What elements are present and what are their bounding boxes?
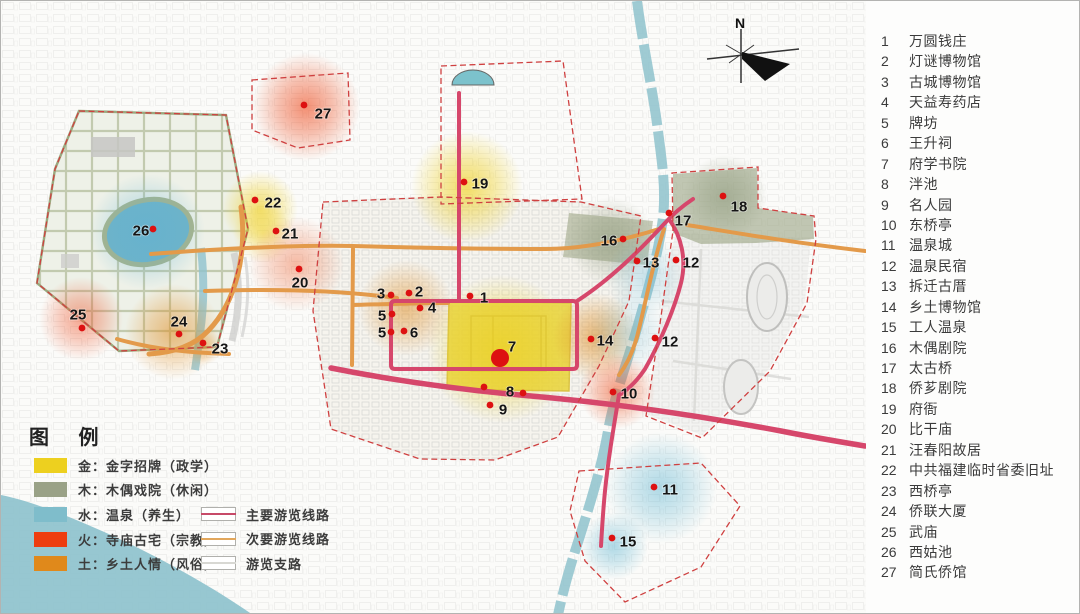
- marker-dot-icon: [79, 325, 86, 332]
- marker-number-label: 5: [378, 325, 386, 342]
- poi-name: 武庙: [909, 522, 938, 542]
- marker-number-label: 1: [480, 290, 488, 307]
- marker-dot-icon: [609, 535, 616, 542]
- marker-dot-icon: [150, 226, 157, 233]
- poi-name: 简氏侨馆: [909, 562, 967, 582]
- marker-number-label: 23: [212, 341, 229, 358]
- marker-number-label: 4: [428, 300, 437, 317]
- poi-list-item: 26 西姑池: [881, 542, 1077, 562]
- poi-number: 23: [881, 481, 909, 501]
- poi-name: 府衙: [909, 399, 938, 419]
- marker-dot-icon: [634, 258, 641, 265]
- marker-number-label: 22: [265, 195, 282, 212]
- marker-dot-icon: [417, 305, 424, 312]
- heat-glow: [411, 131, 523, 243]
- marker-dot-icon: [651, 484, 658, 491]
- marker-number-label: 15: [620, 534, 637, 551]
- poi-number: 25: [881, 522, 909, 542]
- poi-number: 22: [881, 460, 909, 480]
- marker-number-label: 26: [133, 223, 150, 240]
- poi-list-item: 15 工人温泉: [881, 317, 1077, 337]
- marker-dot-icon: [588, 336, 595, 343]
- poi-name: 木偶剧院: [909, 338, 967, 358]
- poi-number: 2: [881, 51, 909, 71]
- poi-list-panel: 1 万圆钱庄 2 灯谜博物馆 3 古城博物馆 4 天益寿药店 5 牌坊 6 王升…: [881, 31, 1077, 583]
- poi-name: 拆迁古厝: [909, 276, 967, 296]
- poi-name: 府学书院: [909, 154, 967, 174]
- poi-name: 万圆钱庄: [909, 31, 967, 51]
- marker-number-label: 12: [683, 255, 700, 272]
- marker-dot-icon: [520, 390, 527, 397]
- poi-list-item: 13 拆迁古厝: [881, 276, 1077, 296]
- poi-name: 中共福建临时省委旧址: [909, 460, 1054, 480]
- marker-dot-icon: [296, 266, 303, 273]
- poi-name: 太古桥: [909, 358, 953, 378]
- poi-number: 14: [881, 297, 909, 317]
- marker-dot-icon: [389, 311, 396, 318]
- marker-number-label: 10: [621, 386, 638, 403]
- marker-dot-icon: [200, 340, 207, 347]
- map-marker-dot[interactable]: [481, 384, 488, 391]
- poi-list-item: 22 中共福建临时省委旧址: [881, 460, 1077, 480]
- poi-name: 名人园: [909, 195, 953, 215]
- marker-dot-icon: [481, 384, 488, 391]
- poi-list-item: 3 古城博物馆: [881, 72, 1077, 92]
- poi-list-item: 11 温泉城: [881, 235, 1077, 255]
- poi-number: 1: [881, 31, 909, 51]
- poi-list-item: 23 西桥亭: [881, 481, 1077, 501]
- poi-number: 9: [881, 195, 909, 215]
- poi-number: 8: [881, 174, 909, 194]
- marker-dot-icon: [491, 349, 509, 367]
- marker-number-label: 8: [506, 384, 514, 401]
- poi-list-item: 19 府衙: [881, 399, 1077, 419]
- marker-dot-icon: [176, 331, 183, 338]
- poi-number: 11: [881, 235, 909, 255]
- poi-list-item: 12 温泉民宿: [881, 256, 1077, 276]
- marker-dot-icon: [720, 193, 727, 200]
- marker-number-label: 20: [292, 275, 309, 292]
- poi-name: 侨联大厦: [909, 501, 967, 521]
- poi-name: 古城博物馆: [909, 72, 982, 92]
- poi-list-item: 2 灯谜博物馆: [881, 51, 1077, 71]
- poi-list-item: 21 汪春阳故居: [881, 440, 1077, 460]
- poi-list-item: 5 牌坊: [881, 113, 1077, 133]
- marker-number-label: 19: [472, 176, 489, 193]
- poi-name: 比干庙: [909, 419, 953, 439]
- marker-dot-icon: [620, 236, 627, 243]
- poi-list-item: 10 东桥亭: [881, 215, 1077, 235]
- poi-name: 天益寿药店: [909, 92, 982, 112]
- marker-number-label: 2: [415, 284, 423, 301]
- marker-number-label: 16: [601, 233, 618, 250]
- stadium-track: [747, 263, 787, 331]
- marker-dot-icon: [401, 328, 408, 335]
- poi-number: 16: [881, 338, 909, 358]
- poi-number: 24: [881, 501, 909, 521]
- poi-name: 牌坊: [909, 113, 938, 133]
- marker-dot-icon: [406, 290, 413, 297]
- map-canvas: N 12345567891011121213141516171819202122…: [1, 1, 866, 614]
- poi-number: 10: [881, 215, 909, 235]
- poi-number: 17: [881, 358, 909, 378]
- marker-dot-icon: [461, 179, 468, 186]
- marker-dot-icon: [467, 293, 474, 300]
- marker-number-label: 3: [377, 286, 385, 303]
- poi-list-item: 14 乡土博物馆: [881, 297, 1077, 317]
- marker-number-label: 18: [731, 199, 748, 216]
- poi-name: 侨芗剧院: [909, 378, 967, 398]
- marker-number-label: 7: [508, 339, 516, 356]
- poi-list-item: 27 简氏侨馆: [881, 562, 1077, 582]
- poi-number: 21: [881, 440, 909, 460]
- north-label: N: [735, 15, 745, 31]
- poi-number: 6: [881, 133, 909, 153]
- marker-number-label: 11: [662, 482, 678, 499]
- poi-number: 18: [881, 378, 909, 398]
- poi-number: 3: [881, 72, 909, 92]
- poi-name: 工人温泉: [909, 317, 967, 337]
- screenshot-root: N 12345567891011121213141516171819202122…: [0, 0, 1080, 614]
- marker-number-label: 9: [499, 402, 507, 419]
- marker-number-label: 27: [315, 106, 332, 123]
- marker-number-label: 24: [171, 314, 188, 331]
- poi-number: 27: [881, 562, 909, 582]
- marker-dot-icon: [273, 228, 280, 235]
- poi-name: 西桥亭: [909, 481, 953, 501]
- marker-dot-icon: [252, 197, 259, 204]
- poi-number: 4: [881, 92, 909, 112]
- marker-dot-icon: [652, 335, 659, 342]
- marker-dot-icon: [673, 257, 680, 264]
- poi-number: 7: [881, 154, 909, 174]
- heat-glow: [580, 512, 648, 580]
- poi-list-item: 8 泮池: [881, 174, 1077, 194]
- marker-number-label: 25: [70, 307, 87, 324]
- marker-number-label: 14: [597, 333, 614, 350]
- poi-number: 20: [881, 419, 909, 439]
- poi-number: 12: [881, 256, 909, 276]
- poi-list-item: 9 名人园: [881, 195, 1077, 215]
- marker-number-label: 6: [410, 325, 418, 342]
- marker-dot-icon: [301, 102, 308, 109]
- poi-name: 泮池: [909, 174, 938, 194]
- poi-list-item: 7 府学书院: [881, 154, 1077, 174]
- poi-name: 温泉民宿: [909, 256, 967, 276]
- marker-dot-icon: [610, 389, 617, 396]
- poi-number: 26: [881, 542, 909, 562]
- marker-number-label: 13: [643, 255, 660, 272]
- poi-list-item: 25 武庙: [881, 522, 1077, 542]
- poi-number: 13: [881, 276, 909, 296]
- poi-list-item: 6 王升祠: [881, 133, 1077, 153]
- poi-name: 汪春阳故居: [909, 440, 982, 460]
- marker-dot-icon: [666, 210, 673, 217]
- marker-dot-icon: [388, 292, 395, 299]
- poi-name: 灯谜博物馆: [909, 51, 982, 71]
- marker-number-label: 17: [675, 213, 692, 230]
- poi-list-item: 17 太古桥: [881, 358, 1077, 378]
- poi-name: 乡土博物馆: [909, 297, 982, 317]
- poi-list-item: 18 侨芗剧院: [881, 378, 1077, 398]
- marker-number-label: 5: [378, 308, 386, 325]
- marker-number-label: 21: [282, 226, 299, 243]
- poi-list-item: 16 木偶剧院: [881, 338, 1077, 358]
- poi-list-item: 4 天益寿药店: [881, 92, 1077, 112]
- poi-list-item: 20 比干庙: [881, 419, 1077, 439]
- poi-list-item: 24 侨联大厦: [881, 501, 1077, 521]
- poi-number: 5: [881, 113, 909, 133]
- poi-name: 王升祠: [909, 133, 953, 153]
- poi-name: 西姑池: [909, 542, 953, 562]
- marker-dot-icon: [487, 402, 494, 409]
- marker-dot-icon: [388, 329, 395, 336]
- poi-name: 温泉城: [909, 235, 953, 255]
- poi-name: 东桥亭: [909, 215, 953, 235]
- poi-number: 19: [881, 399, 909, 419]
- poi-list-item: 1 万圆钱庄: [881, 31, 1077, 51]
- marker-number-label: 12: [662, 334, 679, 351]
- poi-number: 15: [881, 317, 909, 337]
